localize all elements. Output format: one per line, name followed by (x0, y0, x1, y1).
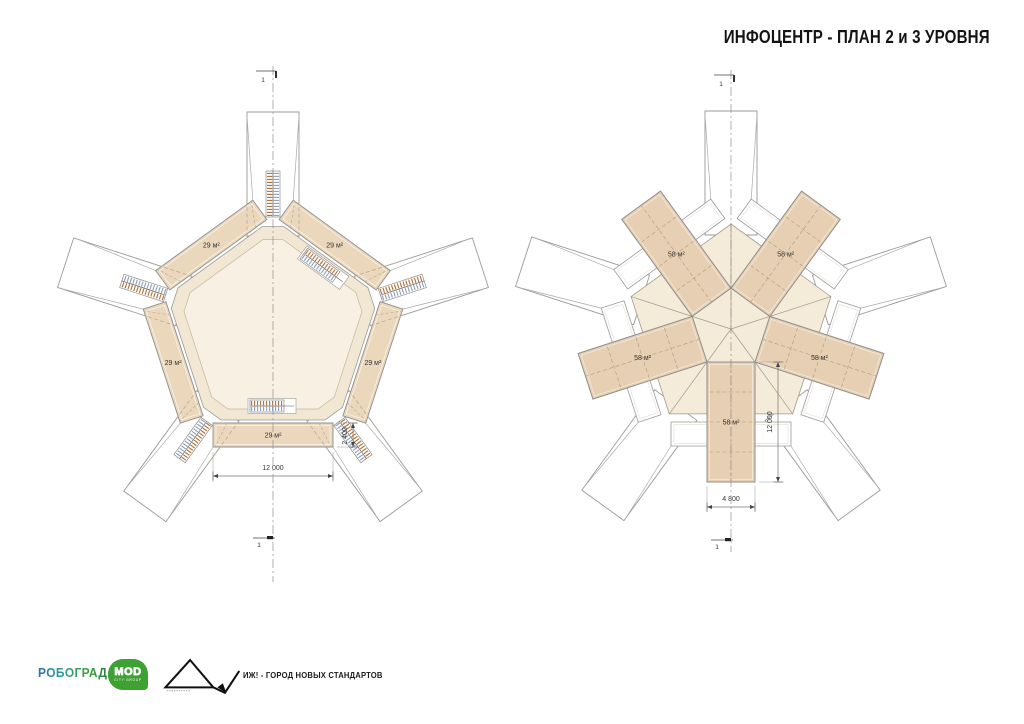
room-area-label: 58 м² (723, 420, 741, 427)
room-area-label: 29 м² (203, 243, 221, 250)
room-area-label: 29 м² (326, 243, 344, 250)
room-area-label: 29 м² (265, 433, 283, 440)
mod-logo-text: MOD (114, 667, 141, 678)
mod-logo: MOD CITY GROUP (108, 659, 148, 690)
mod-logo-subtext: CITY GROUP (114, 679, 142, 683)
page-title: ИНФОЦЕНТР - ПЛАН 2 и 3 УРОВНЯ (724, 27, 990, 48)
drawing-sheet: ИНФОЦЕНТР - ПЛАН 2 и 3 УРОВНЯ 12 0002 40… (0, 0, 1024, 724)
room-area-label: 58 м² (668, 251, 686, 258)
floor-plan-level2: 12 0002 4001129 м²29 м²29 м²29 м²29 м² (58, 66, 489, 582)
section-mark-label: 1 (257, 542, 261, 549)
room-area-label: 29 м² (364, 360, 382, 367)
section-mark-label: 1 (719, 81, 723, 88)
section-mark-label: 1 (261, 77, 265, 84)
floor-plan-level3: 4 80012 0001158 м²58 м²58 м²58 м²58 м² (516, 70, 947, 552)
room-area-label: 58 м² (777, 251, 795, 258)
room-area-label: 29 м² (165, 360, 183, 367)
robogard-logo: РОБОГРАД (38, 665, 107, 680)
section-mark-label: 1 (715, 544, 719, 551)
dim-2400-label: 2 400 (342, 427, 349, 445)
dim-12000v-label: 12 000 (767, 411, 774, 433)
izh-triangle-logo (160, 650, 242, 696)
footer-tagline: ИЖ! - ГОРОД НОВЫХ СТАНДАРТОВ (243, 670, 383, 680)
room-area-label: 58 м² (634, 355, 652, 362)
floor-plans-drawing: 12 0002 4001129 м²29 м²29 м²29 м²29 м²4 … (0, 0, 1024, 724)
room-area-label: 58 м² (811, 355, 829, 362)
stairs (248, 399, 296, 414)
